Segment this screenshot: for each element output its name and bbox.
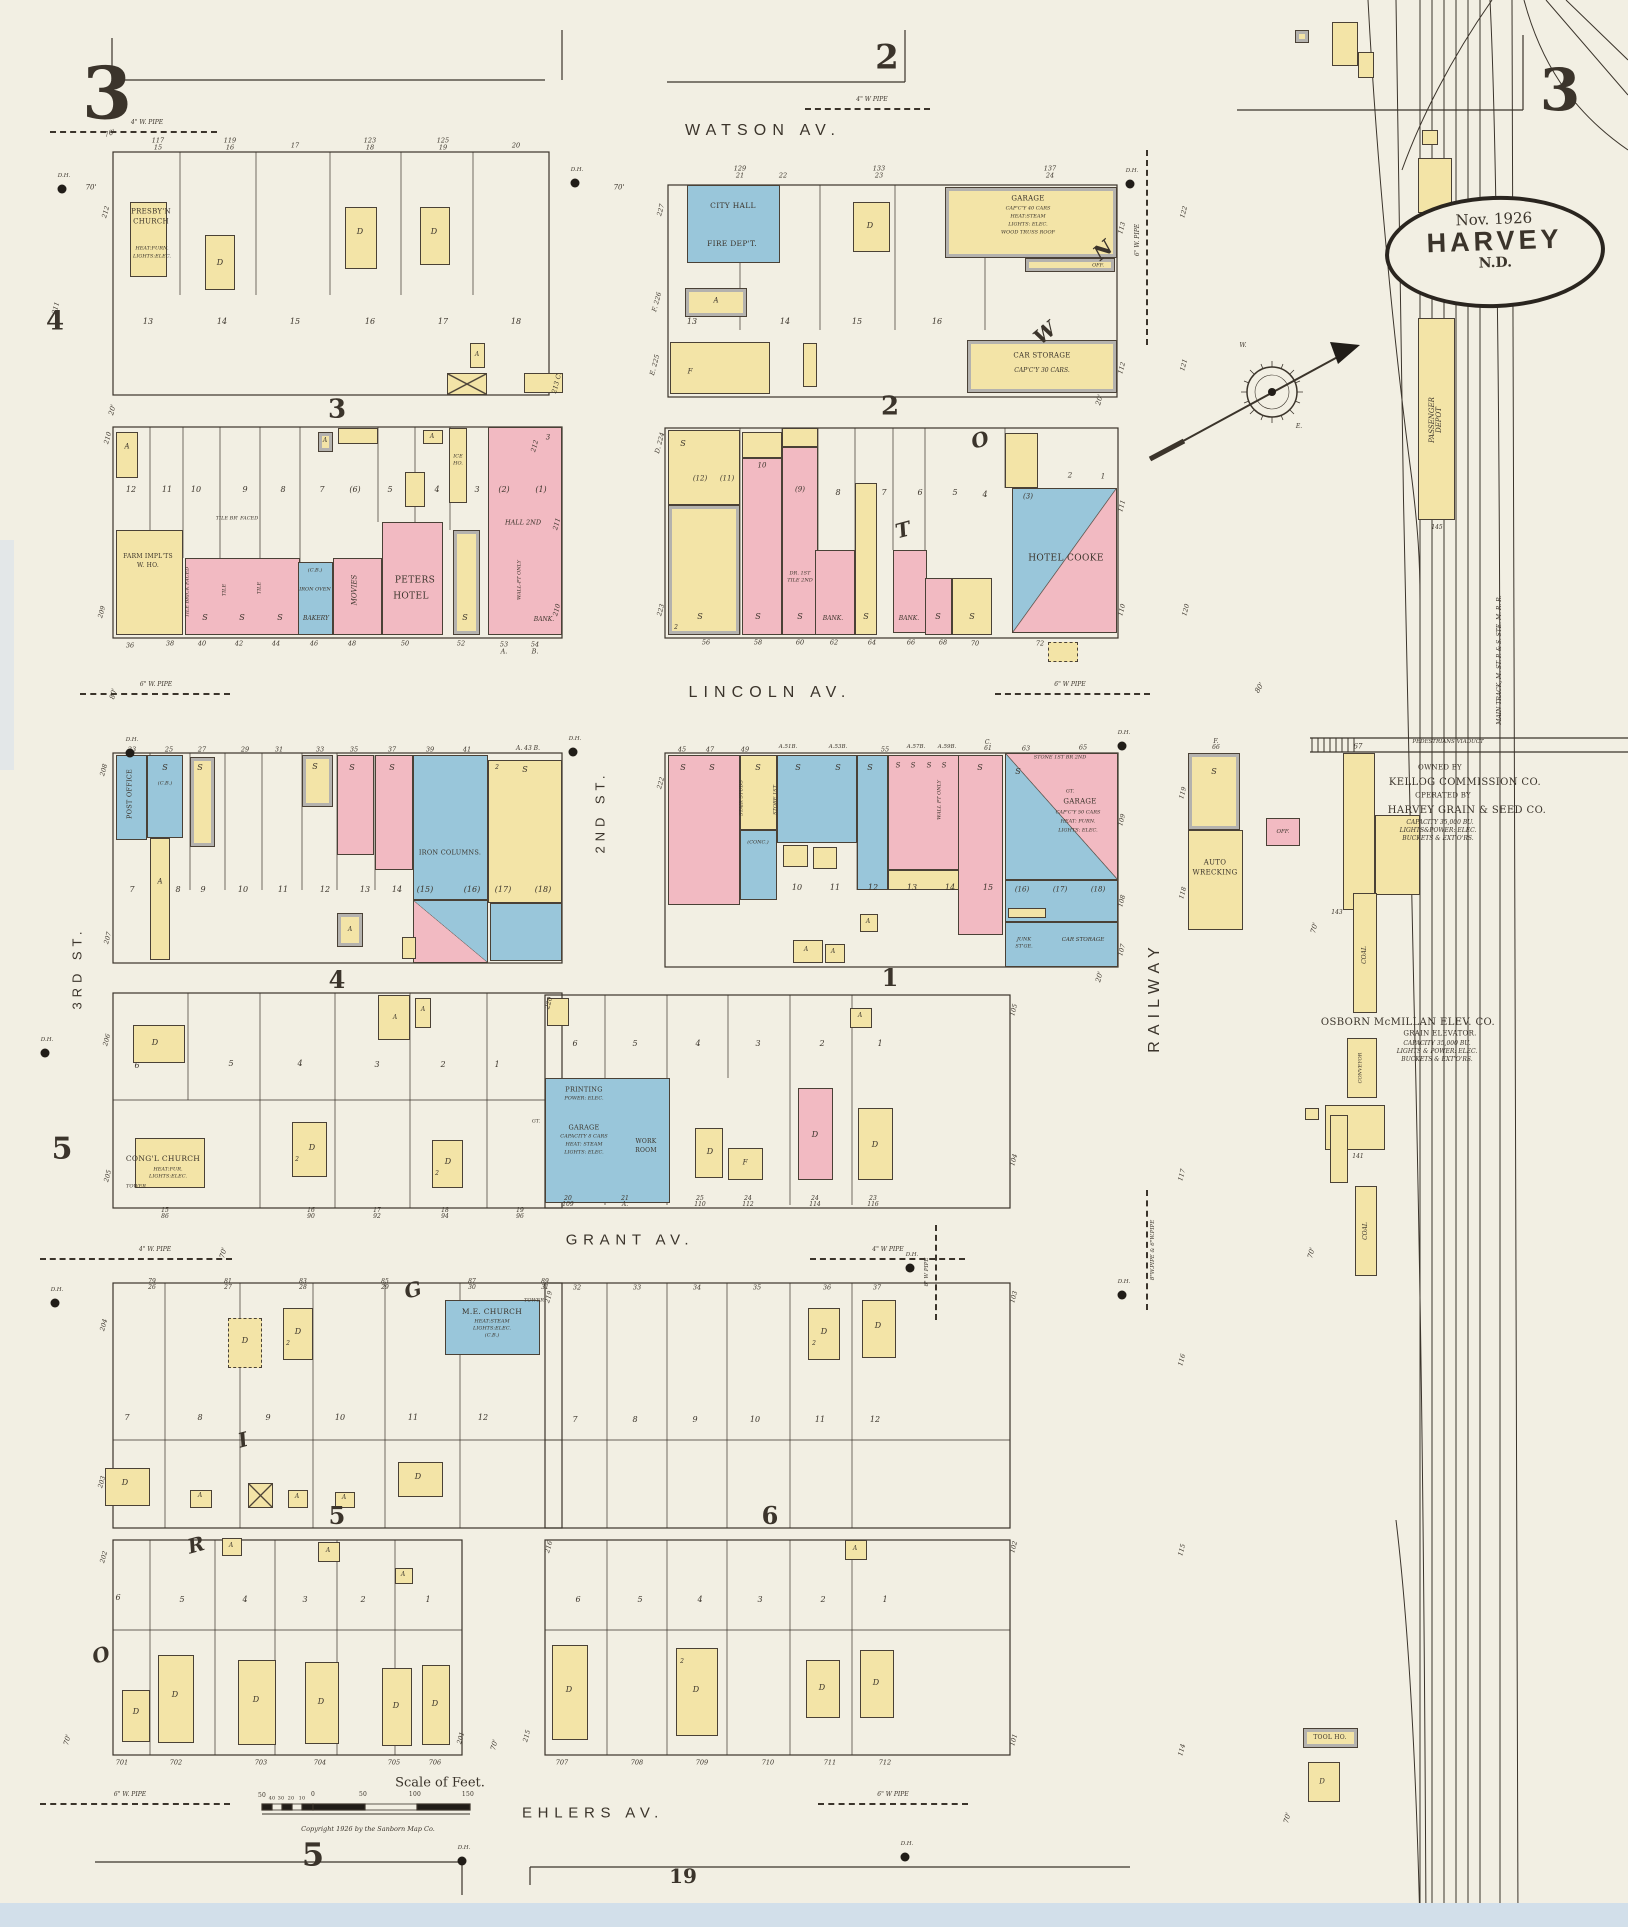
map-label: TILE 2ND: [787, 578, 812, 583]
map-label: 704: [314, 1760, 326, 1767]
map-label: 46: [310, 641, 318, 648]
map-label: 85 29: [381, 1279, 389, 1291]
map-label: (17): [1053, 886, 1067, 893]
map-label: CONVEYOR: [1358, 1053, 1363, 1084]
map-label: ICE: [453, 454, 462, 459]
map-label: JUNK: [1017, 937, 1031, 942]
map-label: 11: [408, 1414, 418, 1422]
map-label: 47: [706, 747, 714, 754]
map-building: [857, 755, 888, 890]
map-label: 15 86: [161, 1208, 169, 1220]
map-label: CAPACITY 8 CARS: [560, 1134, 607, 1139]
hydrant-label: D.H.: [58, 174, 71, 180]
map-label: 705: [388, 1760, 400, 1767]
map-label: 20: [512, 143, 520, 150]
map-building: [1295, 30, 1309, 43]
map-label: 711: [824, 1760, 836, 1767]
map-label: A: [475, 352, 479, 358]
map-label: 10: [238, 886, 248, 894]
map-label: 5: [632, 1040, 637, 1048]
sanborn-map-sheet: 3 3 Nov. 1926 HARVEY N.D. Scale of Feet.…: [0, 0, 1628, 1927]
map-label: 1: [882, 1596, 887, 1604]
map-label: 7: [881, 489, 886, 497]
map-label: 22: [779, 173, 787, 180]
map-label: 72: [1036, 641, 1044, 648]
map-label: D: [1319, 1778, 1325, 1785]
map-label: GT.: [532, 1119, 540, 1124]
map-label: 4" W. PIPE: [131, 120, 163, 126]
map-label: 35: [350, 747, 358, 754]
hydrant-label: D.H.: [571, 168, 584, 174]
map-label: CAPACITY 35,000 BU.: [1403, 1041, 1470, 1047]
map-label: 18 94: [441, 1208, 449, 1220]
street-label: RAILWAY: [1147, 941, 1163, 1053]
map-building: [1332, 22, 1358, 66]
map-building: [668, 505, 740, 635]
block-number: 4: [46, 309, 64, 336]
map-label: 2: [295, 1157, 299, 1163]
map-label: CAR STORAGE: [1013, 352, 1070, 359]
water-pipe-line: [935, 1225, 937, 1320]
map-label: D: [566, 1686, 572, 1694]
water-pipe-line: [1146, 150, 1148, 345]
block-number: 19: [669, 1866, 697, 1886]
map-label: 2: [819, 1040, 824, 1048]
map-label: 16 90: [307, 1208, 315, 1220]
map-label: (CONC.): [747, 840, 768, 845]
map-label: 63: [1022, 746, 1030, 753]
map-building: [742, 432, 782, 458]
water-pipe-line: [50, 131, 217, 133]
map-label: BUCKETS & EXT'O'RS.: [1401, 1057, 1472, 1063]
map-building: [413, 900, 488, 963]
map-label: MAIN TRACK, M. ST. P. & S. STE. M. R. R.: [1497, 595, 1503, 724]
map-label: 709: [696, 1760, 708, 1767]
map-label: 133 23: [873, 165, 885, 178]
map-label: LIGHTS:ELEC.: [473, 1326, 511, 1331]
map-label: 10: [299, 1796, 306, 1801]
map-label: S: [239, 614, 244, 622]
map-label: IRON OVEN: [299, 587, 330, 592]
map-label: A: [348, 927, 352, 933]
map-label: D: [445, 1158, 451, 1166]
map-label: 36: [126, 643, 134, 650]
map-building: [413, 755, 488, 900]
map-label: HEAT:FURN.: [135, 246, 168, 251]
block-number: 3: [328, 397, 346, 424]
map-label: DR. 1ST: [790, 571, 811, 576]
map-label: 0: [311, 1792, 315, 1798]
map-label: A: [326, 1548, 330, 1554]
map-label: D: [867, 222, 873, 230]
map-label: 50: [258, 1793, 266, 1799]
map-label: 4: [242, 1596, 247, 1604]
hydrant-dot: [458, 1857, 467, 1866]
hydrant-label: D.H.: [41, 1038, 54, 1044]
map-label: A: [831, 949, 835, 955]
map-label: FARM IMPL'TS: [123, 554, 173, 560]
sheet-number-top-left: 3: [82, 51, 132, 136]
map-label: (C.B.): [158, 781, 172, 786]
map-label: 55: [881, 747, 889, 754]
map-label: D: [812, 1131, 818, 1139]
map-label: A: [430, 434, 434, 440]
map-label: HO.: [453, 461, 463, 466]
map-label: W. HO.: [137, 563, 159, 569]
map-label: 119 16: [224, 137, 236, 150]
map-label: 8" W PIPE: [925, 1258, 931, 1287]
map-building: [1008, 908, 1046, 918]
hydrant-label: D.H.: [1118, 1280, 1131, 1286]
map-label: 62: [830, 640, 838, 647]
map-label: 11: [278, 886, 288, 894]
hydrant-dot: [571, 179, 580, 188]
map-label: 17: [438, 318, 448, 326]
map-label: GT.: [1066, 789, 1074, 794]
map-label: 9: [265, 1414, 270, 1422]
map-label: S: [755, 613, 760, 621]
map-label: A.53B.: [829, 745, 848, 751]
street-label: EHLERS AV.: [522, 1805, 664, 1820]
map-label: A: [713, 297, 718, 304]
map-label: 13: [360, 886, 370, 894]
map-label: 7: [572, 1416, 577, 1424]
map-label: 34: [693, 1285, 701, 1292]
map-label: S: [709, 764, 714, 772]
map-label: STORE 1ST: [773, 785, 778, 815]
map-label: S: [755, 764, 760, 772]
map-label: 54 B.: [531, 641, 539, 654]
map-label: LIGHTS & POWER: ELEC.: [1397, 1049, 1478, 1055]
map-label: (18): [1091, 886, 1105, 893]
map-building: [1005, 753, 1118, 880]
map-label: PETERS: [395, 576, 435, 585]
map-label: 16: [365, 318, 375, 326]
map-label: D: [819, 1684, 825, 1692]
map-label: 13: [143, 318, 153, 326]
map-label: WALL PT ONLY: [937, 780, 942, 820]
block-number: 5: [329, 1504, 346, 1528]
map-label: 35: [753, 1285, 761, 1292]
map-label: 15: [852, 318, 862, 326]
map-label: M.E. CHURCH: [462, 1308, 522, 1316]
map-label: D: [318, 1698, 324, 1706]
map-label: F: [688, 368, 693, 375]
map-building: [248, 1483, 273, 1508]
map-label: 2: [674, 625, 678, 631]
map-building: [925, 578, 952, 635]
map-label: 81 27: [224, 1279, 232, 1291]
map-label: WALL-PT ONLY: [517, 560, 522, 600]
map-label: 11: [815, 1416, 825, 1424]
hydrant-dot: [1118, 1291, 1127, 1300]
street-label: LINCOLN AV.: [689, 685, 852, 701]
map-label: WORK: [635, 1139, 656, 1145]
map-label: 6: [134, 1062, 139, 1070]
map-building: [488, 760, 562, 903]
map-label: 14: [780, 318, 790, 326]
map-label: E.: [1296, 424, 1302, 430]
map-label: 4: [297, 1060, 302, 1068]
map-label: 56: [702, 640, 710, 647]
map-label: 25 110: [694, 1196, 705, 1208]
map-label: 7: [124, 1414, 129, 1422]
map-label: 14: [392, 886, 402, 894]
map-label: A: [804, 947, 808, 953]
map-label: 3: [374, 1061, 379, 1069]
map-label: 150: [462, 1792, 474, 1798]
map-label: BANK.: [899, 616, 919, 622]
map-label: (3): [1023, 493, 1033, 500]
map-label: 702: [170, 1760, 182, 1767]
map-building: [1422, 130, 1438, 145]
map-label: A: [323, 438, 327, 444]
map-label: 123 18: [364, 137, 376, 150]
map-label: HEAT:STEAM: [474, 1319, 509, 1324]
hydrant-label: D.H.: [1126, 169, 1139, 175]
map-label: 6" W PIPE: [1054, 682, 1085, 688]
map-label: LIGHTS:ELEC.: [149, 1174, 187, 1179]
map-label: 706: [429, 1760, 441, 1767]
map-label: A: [295, 1494, 299, 1500]
map-label: S: [835, 764, 840, 772]
map-building: [777, 755, 857, 843]
map-label: 3: [755, 1040, 760, 1048]
map-label: 12: [870, 1416, 880, 1424]
map-label: A: [198, 1493, 202, 1499]
map-label: S: [680, 440, 685, 448]
map-label: 5: [179, 1596, 184, 1604]
map-label: 8: [280, 486, 285, 494]
map-label: LIGHTS: ELEC.: [1058, 828, 1098, 833]
map-label: 117 15: [152, 137, 164, 150]
map-label: C. 61: [984, 740, 992, 752]
hydrant-dot: [41, 1049, 50, 1058]
map-label: ROOM: [635, 1148, 656, 1154]
map-label: D: [295, 1328, 301, 1336]
map-label: TILE: [257, 582, 262, 594]
map-label: F: [743, 1159, 748, 1166]
scale-bar: [262, 1804, 470, 1814]
map-building: [375, 755, 413, 870]
map-label: 2: [286, 1341, 290, 1347]
map-label: A: [866, 919, 870, 925]
map-label: 20 109: [562, 1196, 573, 1208]
map-label: (9): [795, 486, 805, 493]
map-label: TOOL HO.: [1313, 1735, 1346, 1741]
block-number: 4: [329, 968, 346, 992]
map-building: [116, 530, 183, 635]
map-label: 18: [511, 318, 521, 326]
map-label: 17 92: [373, 1208, 381, 1220]
map-label: 83 28: [299, 1279, 307, 1291]
map-label: 14: [217, 318, 227, 326]
map-label: D: [393, 1702, 399, 1710]
map-label: 3: [302, 1596, 307, 1604]
map-building: [1005, 433, 1038, 488]
map-label: A: [401, 1572, 405, 1578]
map-label: 3: [474, 486, 479, 494]
map-building: [1188, 753, 1240, 830]
map-label: CAR STORAGE: [1062, 938, 1105, 944]
map-label: 2: [812, 1341, 816, 1347]
hydrant-label: D.H.: [906, 1253, 919, 1259]
map-building: [742, 458, 782, 635]
hydrant-dot: [906, 1264, 915, 1273]
map-building: [803, 343, 817, 387]
map-label: 13: [907, 884, 917, 892]
map-label: HEAT: STEAM: [566, 1142, 603, 1147]
map-label: 70': [86, 184, 97, 191]
map-label: 100: [409, 1792, 421, 1798]
map-label: D: [133, 1708, 139, 1716]
map-label: OSBORN McMILLAN ELEV. CO.: [1321, 1018, 1495, 1028]
map-label: 48: [348, 641, 356, 648]
map-label: POWER: ELEC.: [564, 1096, 603, 1101]
map-label: 58: [754, 640, 762, 647]
map-label: (6): [349, 486, 360, 494]
map-label: S: [1211, 768, 1216, 776]
map-label: 6" W. PIPE: [1135, 224, 1141, 256]
map-label: 6: [115, 1594, 120, 1602]
map-building: [1305, 1108, 1319, 1120]
map-label: 4: [697, 1596, 702, 1604]
map-label: S: [935, 613, 940, 621]
map-label: D: [431, 228, 437, 236]
map-label: S: [680, 764, 685, 772]
map-label: HOTEL COOKE: [1028, 554, 1104, 563]
map-label: 6: [917, 489, 922, 497]
map-label: 50: [401, 641, 409, 648]
street-label: GRANT AV.: [566, 1232, 695, 1247]
map-label: 16: [932, 318, 942, 326]
map-label: A.51B.: [779, 745, 798, 751]
map-label: CONG'L CHURCH: [126, 1155, 200, 1163]
map-label: 37: [873, 1285, 881, 1292]
map-label: BAKERY: [303, 616, 329, 622]
map-label: D: [875, 1322, 881, 1330]
map-label: TILE: [222, 584, 227, 596]
map-label: 17: [291, 143, 299, 150]
map-label: 3: [546, 434, 550, 441]
map-label: 12: [868, 884, 878, 892]
map-label: D: [309, 1144, 315, 1152]
map-label: D: [707, 1148, 713, 1156]
map-label: STONE 1ST BR 2ND: [1034, 755, 1087, 760]
map-building: [783, 845, 808, 867]
map-label: HEAT:FUR.: [153, 1167, 182, 1172]
map-label: 6: [572, 1040, 577, 1048]
map-label: A: [858, 1013, 862, 1019]
map-label: 141: [1352, 1154, 1363, 1160]
map-label: (15): [417, 886, 433, 894]
map-label: F. 66: [1212, 739, 1220, 751]
map-building: [687, 185, 780, 263]
map-label: 10: [750, 1416, 760, 1424]
map-label: 7: [319, 486, 324, 494]
map-label: LIGHTS: ELEC.: [1008, 222, 1048, 227]
map-label: 6" W PIPE: [877, 1792, 908, 1798]
map-label: LIGHTS&POWER: ELEC.: [1400, 828, 1477, 834]
sheet-number-top-right: 3: [1540, 56, 1580, 124]
map-label: D: [415, 1473, 421, 1481]
map-label: 44: [272, 641, 280, 648]
map-label: 6" W. PIPE: [114, 1792, 146, 1798]
map-label: OWNED BY: [1418, 764, 1462, 771]
map-label: KELLOG COMMISSION CO.: [1389, 778, 1541, 788]
map-label: 11: [830, 884, 840, 892]
map-label: S: [197, 764, 202, 772]
map-building: [670, 342, 770, 394]
map-label: BANK.: [534, 617, 554, 623]
map-label: 45: [678, 747, 686, 754]
map-building: [952, 578, 992, 635]
map-label: D: [693, 1686, 699, 1694]
map-label: 32: [573, 1285, 581, 1292]
map-label: PRESBY'N: [131, 208, 171, 215]
map-label: 20: [288, 1796, 295, 1801]
scale-title: Scale of Feet.: [395, 1776, 485, 1791]
map-label: D: [122, 1479, 128, 1487]
map-label: S: [1015, 768, 1020, 776]
map-label: 36: [823, 1285, 831, 1292]
block-number: 6: [762, 1504, 779, 1528]
map-label: 87 30: [468, 1279, 476, 1291]
map-building: [1358, 52, 1374, 78]
hydrant-label: D.H.: [901, 1842, 914, 1848]
map-label: 66: [907, 640, 915, 647]
street-label: 3RD ST.: [70, 927, 83, 1010]
map-label: 703: [255, 1760, 267, 1767]
map-label: BANK.: [823, 616, 843, 622]
map-label: S: [863, 613, 868, 621]
map-label: 712: [879, 1760, 891, 1767]
map-label: 4" W. PIPE: [139, 1247, 171, 1253]
map-label: D: [432, 1700, 438, 1708]
map-label: A.57B.: [907, 745, 926, 751]
map-label: HOTEL: [393, 592, 429, 601]
map-label: 33: [633, 1285, 641, 1292]
map-label: CHURCH: [133, 218, 169, 225]
map-label: 4" W PIPE: [856, 97, 887, 103]
map-label: 145: [1431, 525, 1442, 531]
map-label: 7: [129, 886, 134, 894]
map-label: 3: [757, 1596, 762, 1604]
map-label: S: [911, 762, 916, 769]
map-label: OPERATED BY: [1415, 792, 1471, 799]
hydrant-dot: [1126, 180, 1135, 189]
hydrant-label: D.H.: [458, 1846, 471, 1852]
map-label: 38: [166, 641, 174, 648]
map-label: S: [462, 614, 467, 622]
water-pipe-line: [1146, 1190, 1148, 1310]
map-label: TOWER: [126, 1184, 146, 1189]
map-label: 708: [631, 1760, 643, 1767]
map-label: 15: [290, 318, 300, 326]
map-building: [338, 428, 378, 444]
map-label: (2): [498, 486, 509, 494]
block-number: 5: [52, 1135, 73, 1166]
map-label: 15: [983, 884, 993, 892]
map-label: 23 116: [867, 1196, 878, 1208]
map-label: 2: [440, 1061, 445, 1069]
map-label: (11): [720, 475, 734, 482]
map-label: S: [977, 764, 982, 772]
map-label: 68: [939, 640, 947, 647]
map-label: (16): [464, 886, 480, 894]
map-label: 52: [457, 641, 465, 648]
map-label: 11: [162, 486, 172, 494]
